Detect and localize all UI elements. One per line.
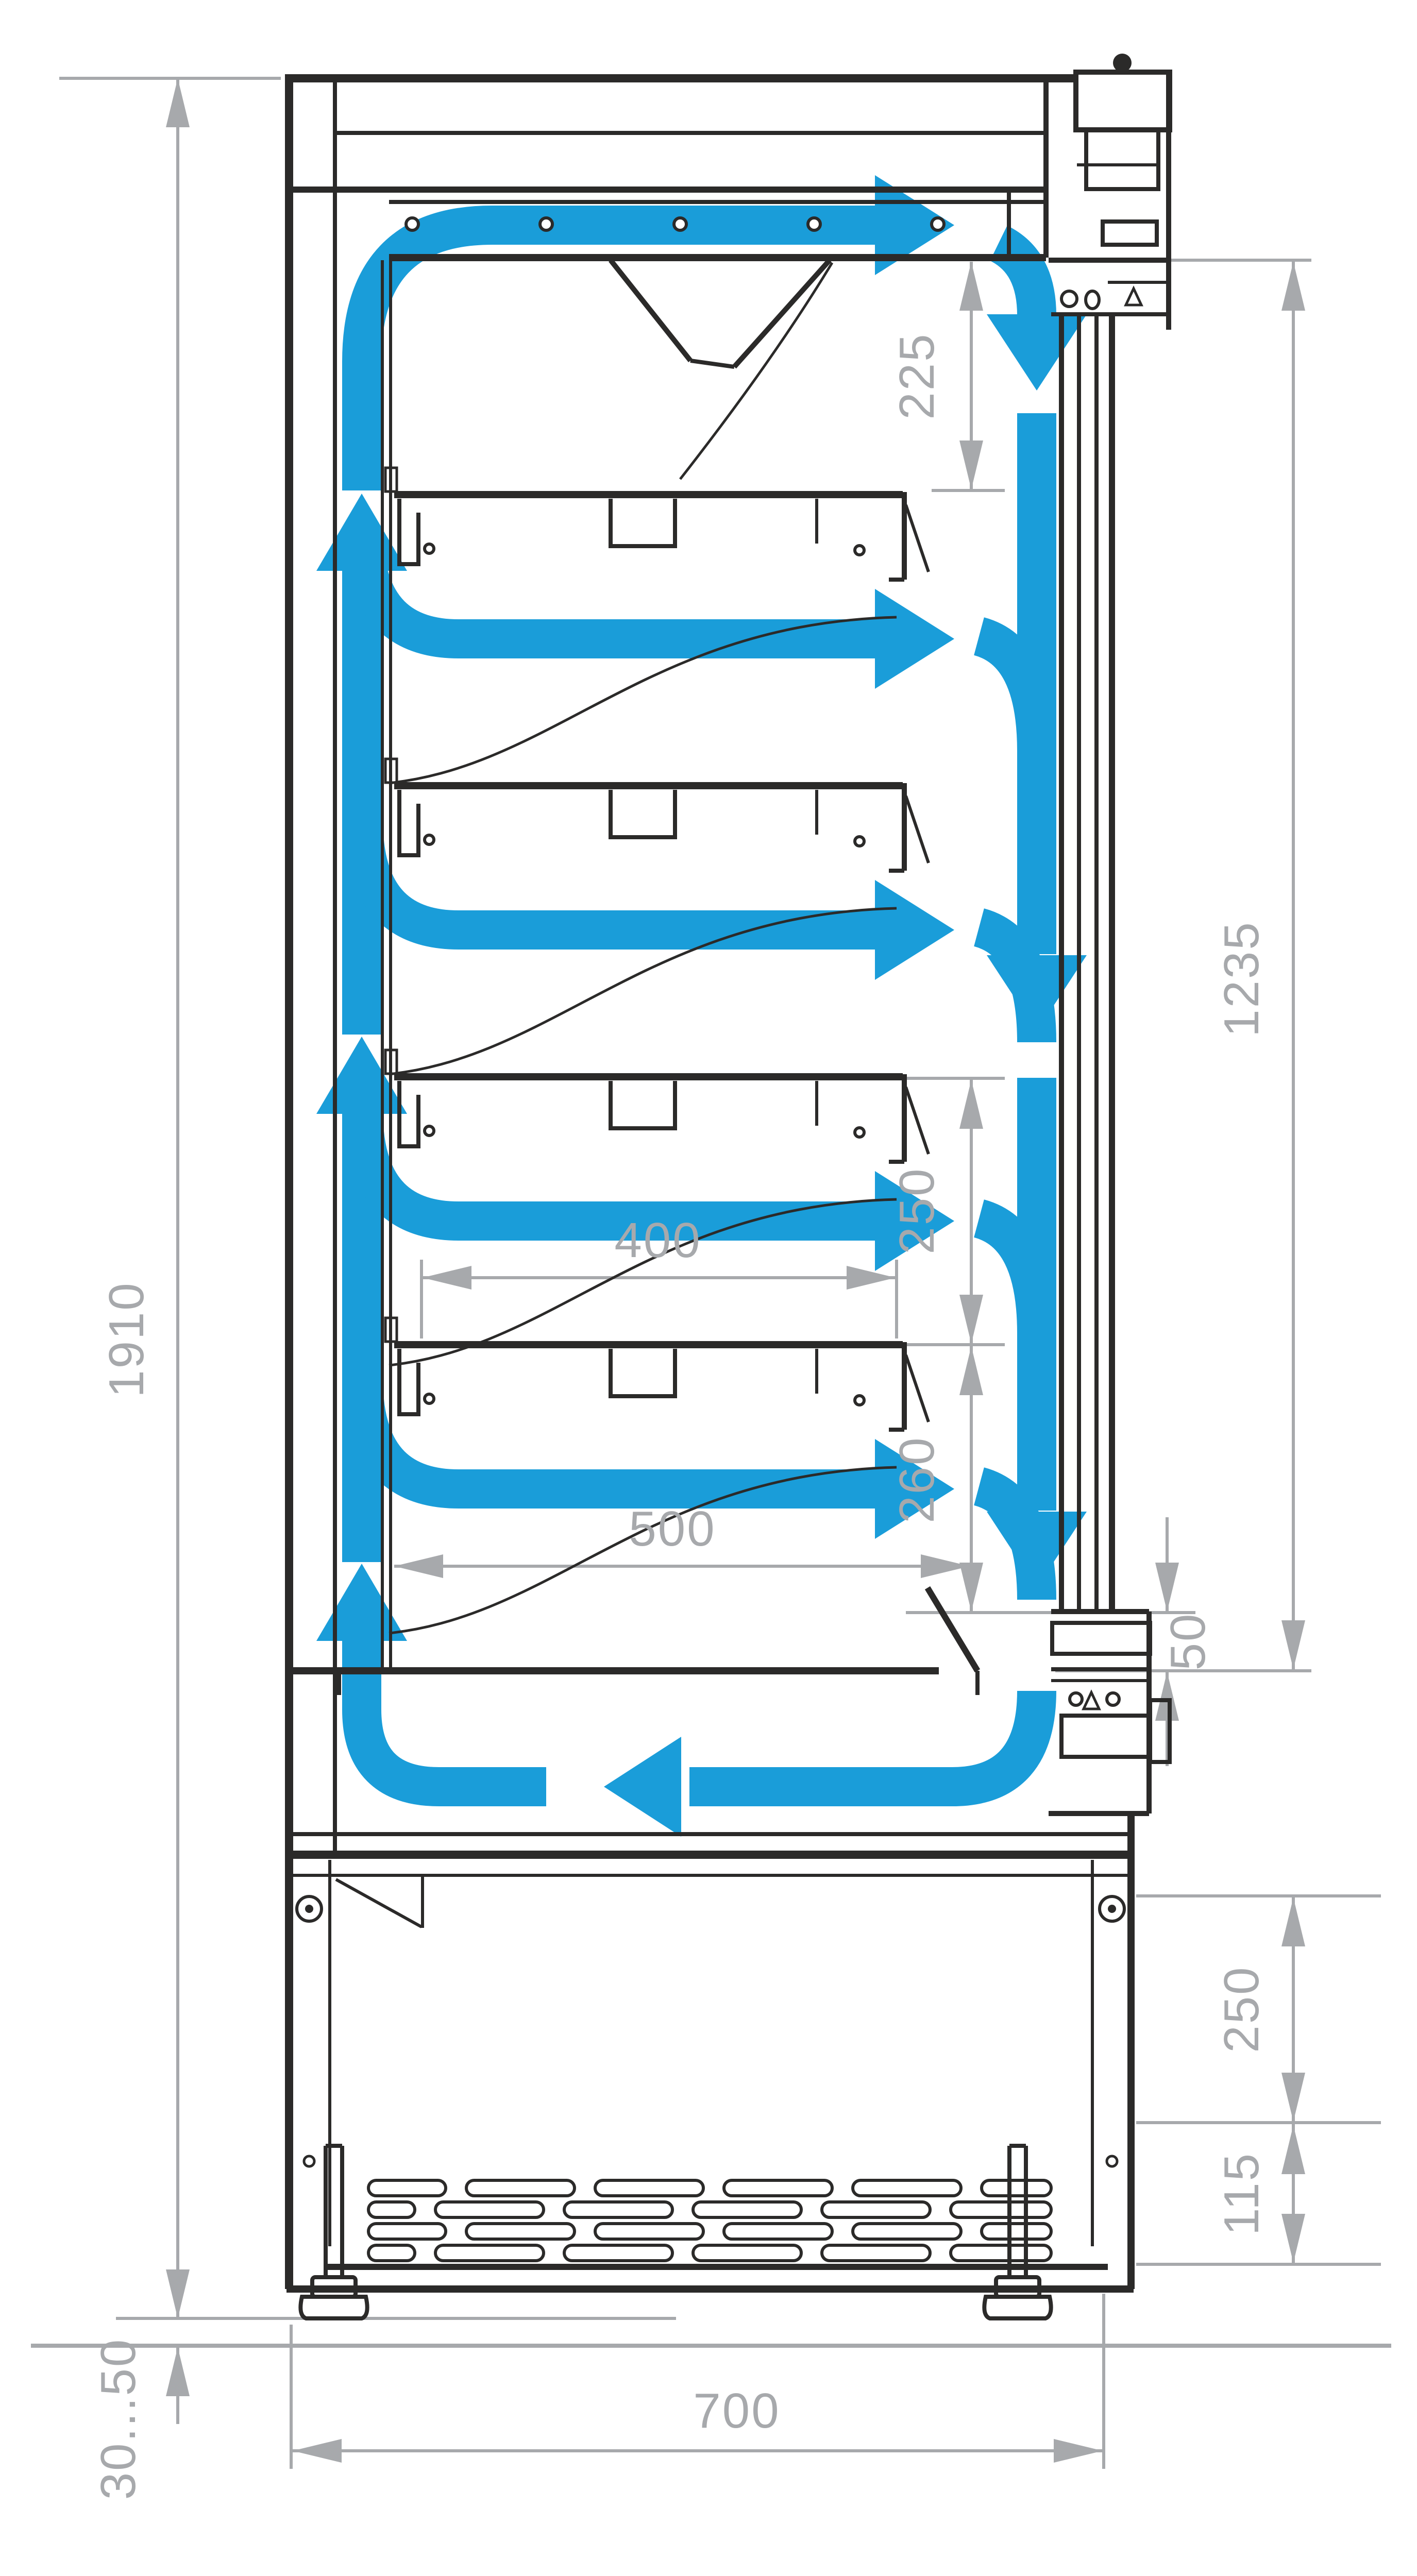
dim-shelf-depth: [423, 1266, 896, 1290]
arrow-down-icon: [959, 1563, 983, 1612]
air-deflector: [611, 260, 832, 479]
airflow-down-arrow-icon: [987, 955, 1087, 1031]
grille-slot: [724, 2180, 832, 2196]
arrow-up-icon: [1155, 1672, 1179, 1721]
cabinet-section-drawing: 225 1235 250 400 260 500 50 1910 250 115…: [0, 0, 1417, 2576]
bracket-hole: [425, 835, 434, 844]
rivet-icon: [808, 218, 820, 230]
ticket-strip: [906, 1087, 929, 1154]
arrow-down-icon: [1155, 1563, 1179, 1612]
arrow-left-icon: [423, 1266, 471, 1290]
alignment-marker-icon: [1084, 1692, 1099, 1709]
shelf-support: [611, 1349, 675, 1396]
grille-slot: [853, 2224, 961, 2239]
grille-slot: [368, 2245, 415, 2261]
airflow-return-right: [689, 1691, 1037, 1787]
ticket-strip: [906, 796, 929, 863]
shelf-bracket: [399, 1349, 418, 1414]
bracket-hole: [425, 1394, 434, 1403]
grille-slot: [693, 2202, 801, 2217]
rivet-icon: [406, 218, 418, 230]
label-shelf-spacing: 250: [889, 1167, 944, 1254]
grille-slot: [466, 2180, 575, 2196]
hinge-pin: [1061, 291, 1077, 307]
arrow-down-icon: [1281, 2214, 1305, 2263]
arrow-up-icon: [1281, 262, 1305, 311]
foot-pad: [300, 2297, 367, 2318]
grille-slot: [466, 2224, 575, 2239]
grille-slot: [435, 2245, 544, 2261]
grille-slot: [564, 2202, 672, 2217]
alignment-marker-icon: [1126, 289, 1141, 305]
ventilation-grille: [368, 2180, 1051, 2261]
rail-hole: [855, 837, 864, 846]
corner-brace: [336, 1879, 421, 1927]
grille-slot: [564, 2245, 672, 2261]
grille-slot: [595, 2224, 703, 2239]
dim-plinth-height: [1281, 2124, 1305, 2263]
arrow-down-icon: [959, 440, 983, 489]
dim-canopy-to-first-shelf: [959, 262, 983, 489]
label-plinth-height: 115: [1214, 2152, 1269, 2235]
sensor-wire: [680, 263, 832, 479]
grille-slot: [435, 2202, 544, 2217]
airflow-branch-3: [364, 1126, 876, 1221]
grille-slot: [822, 2245, 930, 2261]
dim-overall-height: [166, 78, 190, 2318]
arrow-down-icon: [166, 2269, 190, 2318]
grille-slot: [853, 2180, 961, 2196]
airflow-branch-2: [364, 835, 876, 930]
arrow-down-icon: [959, 1295, 983, 1344]
airflow-branch-4: [364, 1394, 876, 1489]
ticket-strip: [906, 505, 929, 572]
shelf-bracket: [399, 499, 418, 564]
arrow-right-icon: [847, 1266, 896, 1290]
dim-overall-depth: [293, 2439, 1103, 2463]
grille-slot: [368, 2202, 415, 2217]
airflow-duct-segment-3: [362, 225, 876, 490]
airflow-branch-1: [364, 544, 876, 639]
airflow-up-arrow-icon: [316, 1037, 407, 1114]
bracket-hole: [425, 1126, 434, 1136]
dim-air-curtain-height: [1281, 262, 1305, 1669]
grille-slot: [693, 2245, 801, 2261]
screw-icon: [304, 2156, 314, 2166]
label-air-curtain-height: 1235: [1214, 921, 1269, 1037]
dim-last-shelf-to-deck: [959, 1346, 983, 1612]
arrow-up-icon: [166, 2347, 190, 2396]
grille-slot: [368, 2180, 446, 2196]
label-canopy-to-first-shelf: 225: [889, 332, 944, 419]
grille-slot: [951, 2202, 1051, 2217]
dim-floor-clearance: [166, 2346, 190, 2424]
airflow-right-arrow-icon: [875, 880, 954, 980]
airflow-left-arrow-icon: [604, 1737, 681, 1837]
door-bottom-frame: [1049, 1612, 1170, 1814]
airflow-right-arrow-icon: [875, 589, 954, 689]
grille-slot: [982, 2224, 1051, 2239]
hinge-bolt: [1070, 1693, 1082, 1705]
screw-icon: [1107, 2156, 1117, 2166]
label-outlet-gap: 50: [1160, 1613, 1216, 1671]
label-shelf-depth: 400: [614, 1213, 701, 1268]
shelf-support: [611, 499, 675, 546]
dim-shelf-spacing: [959, 1080, 983, 1344]
door-top-frame: [1049, 54, 1170, 330]
label-last-shelf-to-deck: 260: [889, 1436, 944, 1523]
dim-deck-depth: [394, 1554, 970, 1578]
bracket-hole: [425, 544, 434, 553]
arrow-up-icon: [959, 1080, 983, 1129]
rail-hole: [855, 1396, 864, 1405]
shelf-bracket: [399, 790, 418, 855]
pivot-bolt-icon: [1113, 54, 1132, 72]
label-overall-depth: 700: [693, 2383, 780, 2438]
grille-slot: [822, 2202, 930, 2217]
arrow-right-icon: [1054, 2439, 1103, 2463]
arrow-up-icon: [959, 1346, 983, 1395]
grille-slot: [595, 2180, 703, 2196]
label-floor-clearance: 30...50: [91, 2338, 146, 2500]
grille-slot: [982, 2180, 1051, 2196]
label-machine-compartment-height: 250: [1214, 1965, 1269, 2053]
arrow-up-icon: [1281, 2125, 1305, 2174]
airflow-down-arrow-icon: [987, 314, 1087, 391]
foot-pad: [984, 2297, 1051, 2318]
shelf-support: [611, 1081, 675, 1128]
arrow-left-icon: [293, 2439, 342, 2463]
airflow-up-arrow-icon: [316, 1564, 407, 1641]
dim-machine-compartment-height: [1281, 1897, 1305, 2122]
ticket-strip: [906, 1355, 929, 1422]
grille-slot: [724, 2224, 832, 2239]
arrow-up-icon: [959, 262, 983, 311]
arrow-up-icon: [1281, 1897, 1305, 1946]
rail-hole: [855, 546, 864, 555]
rail-hole: [855, 1128, 864, 1137]
rivet-icon: [932, 218, 944, 230]
airflow-down-arrow-icon: [987, 1512, 1087, 1588]
shelf-support: [611, 790, 675, 837]
hinge-bolt: [1107, 1693, 1119, 1705]
label-overall-height: 1910: [99, 1281, 154, 1398]
arrow-left-icon: [394, 1554, 443, 1578]
rivet-icon: [674, 218, 686, 230]
arrow-down-icon: [1281, 2073, 1305, 2122]
arrow-down-icon: [1281, 1620, 1305, 1669]
rivet-icon: [540, 218, 552, 230]
grille-slot: [951, 2245, 1051, 2261]
arrow-up-icon: [166, 78, 190, 127]
label-deck-depth: 500: [629, 1501, 716, 1556]
grille-slot: [368, 2224, 446, 2239]
